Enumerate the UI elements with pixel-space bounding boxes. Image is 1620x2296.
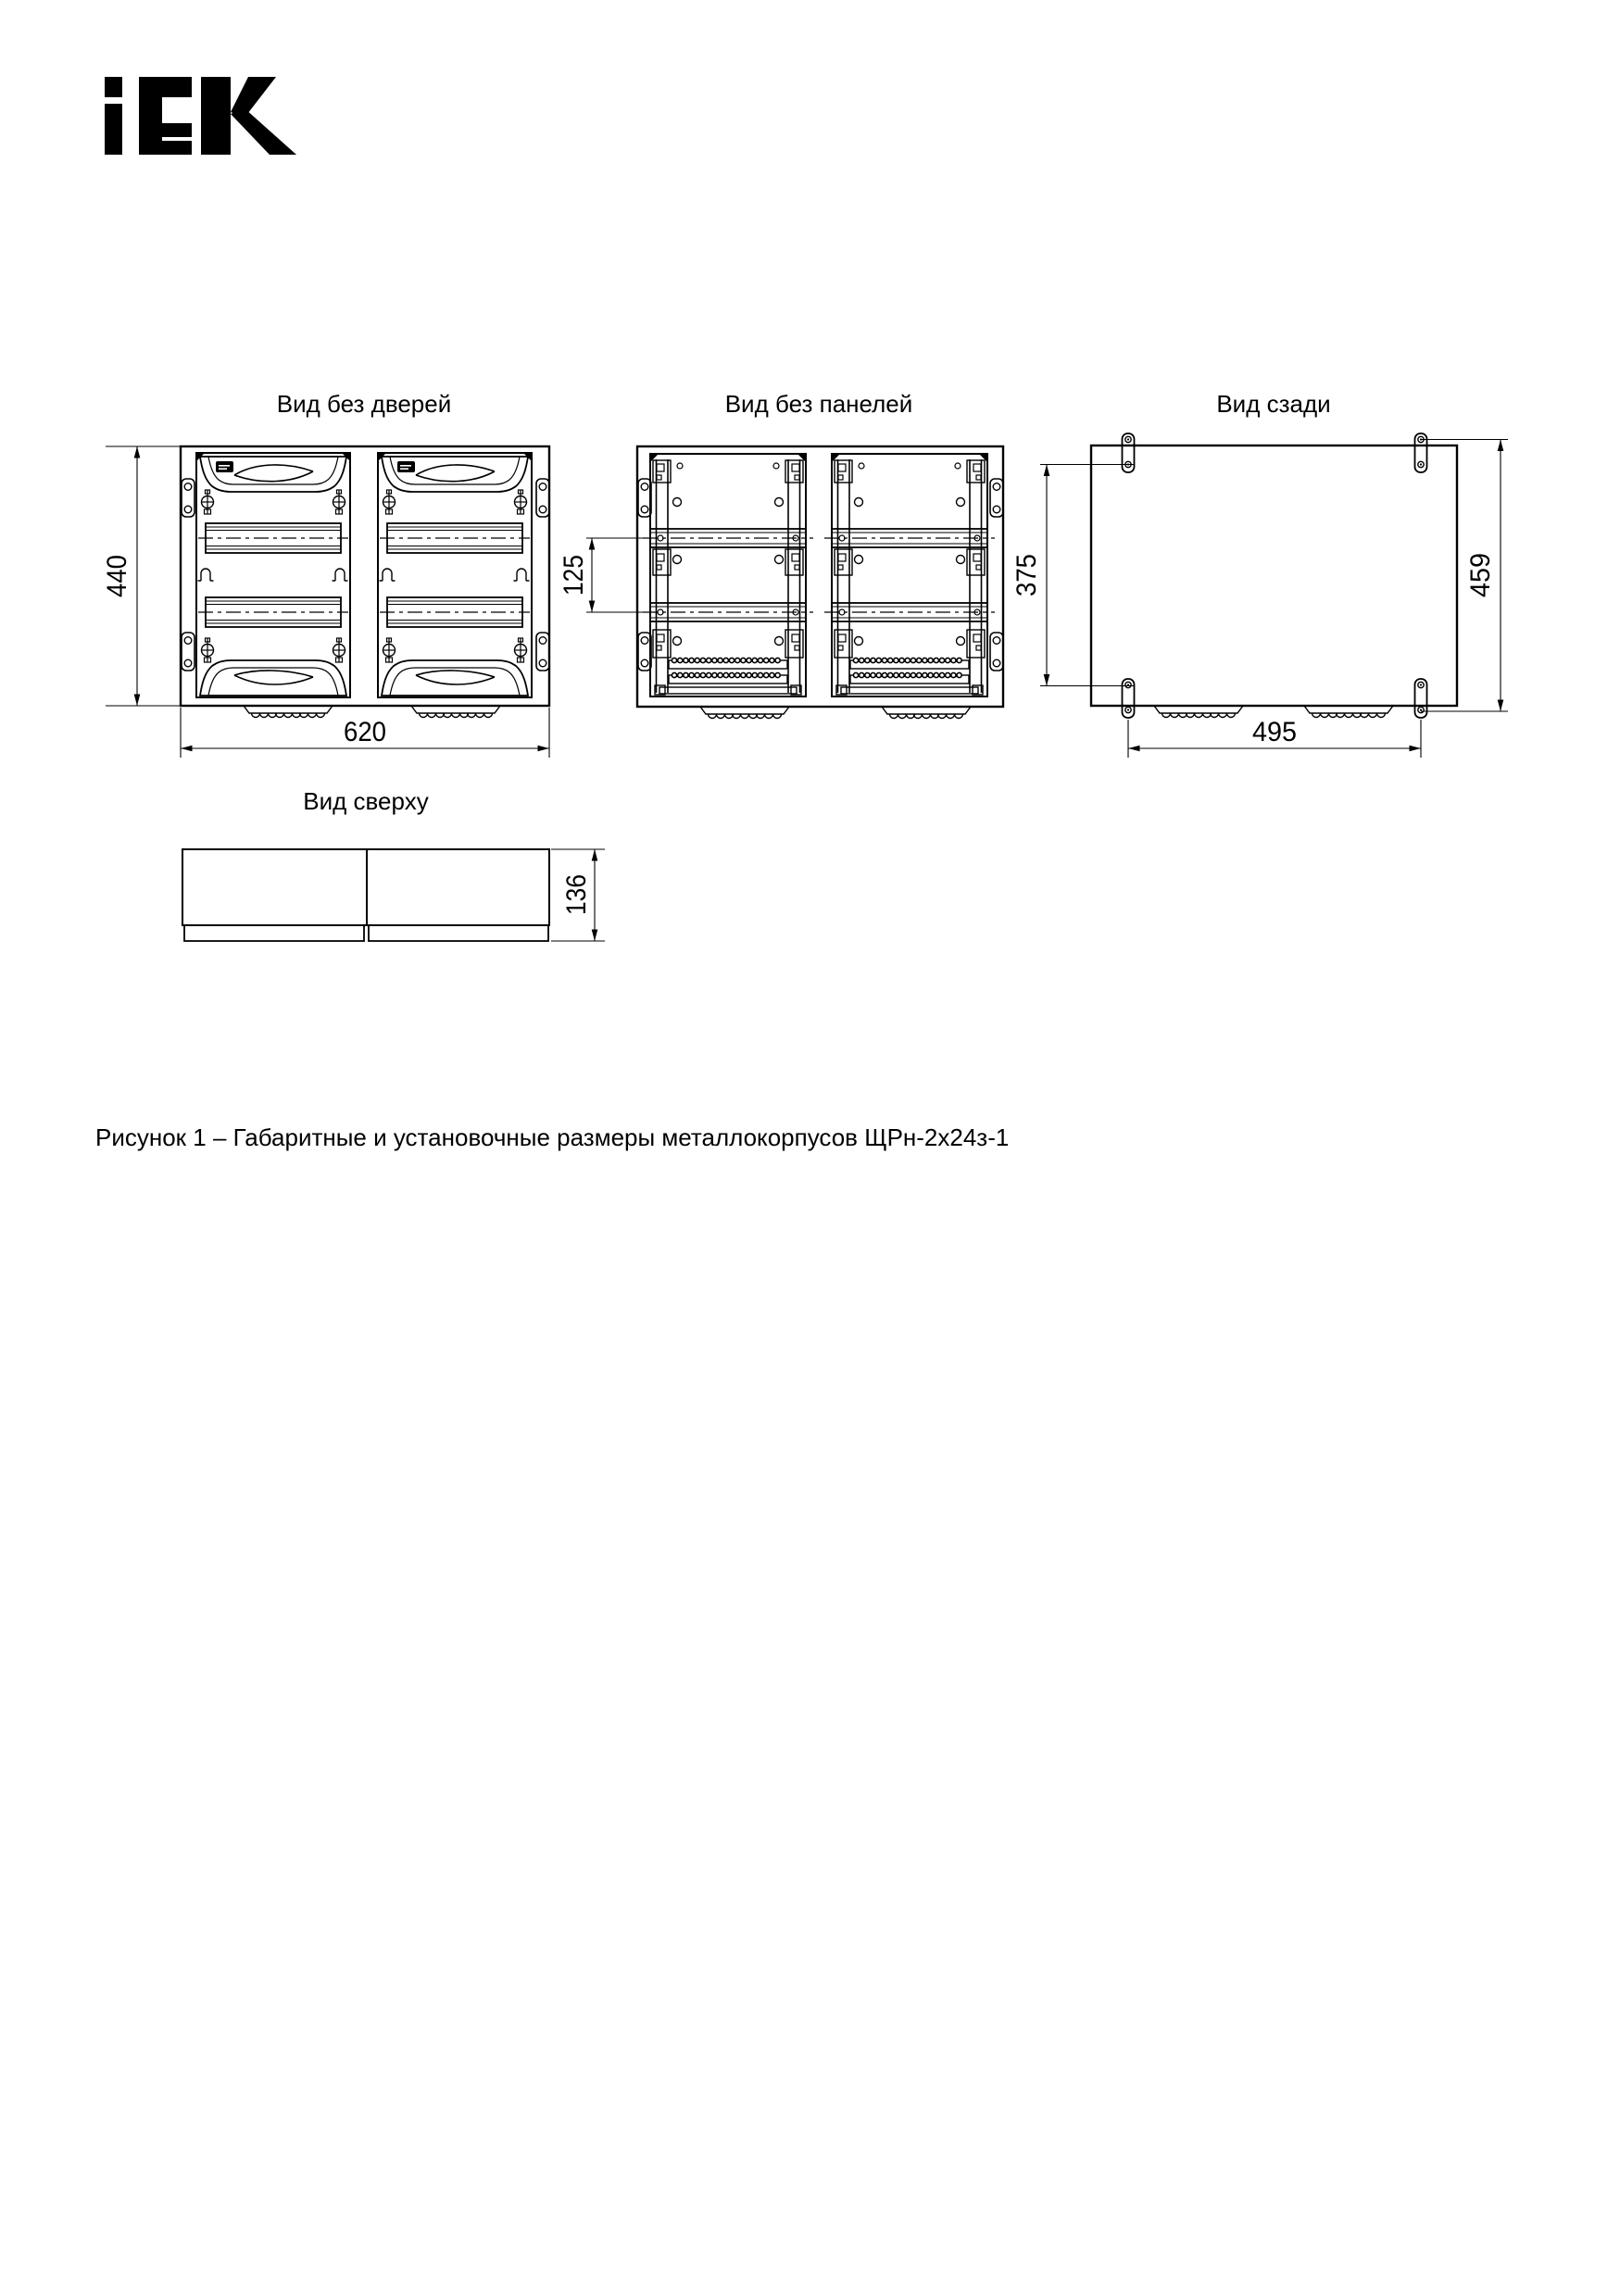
dimension-125: 125 xyxy=(559,538,645,612)
view-rear-title: Вид сзади xyxy=(1216,390,1330,418)
view-without-panels-title: Вид без панелей xyxy=(725,390,913,418)
view-without-panels: Вид без панелей 125 xyxy=(559,390,1003,719)
dimension-620-label: 620 xyxy=(344,717,386,747)
view-top-title: Вид сверху xyxy=(303,787,428,815)
door-section-right xyxy=(378,453,532,697)
cable-knockouts xyxy=(1304,706,1393,718)
cable-knockouts xyxy=(244,706,333,718)
enclosure-outline xyxy=(181,446,549,706)
dimension-459-label: 459 xyxy=(1465,553,1496,597)
drawing-page: Вид без дверей 440 620 Вид без панелей xyxy=(0,0,1620,2296)
cable-knockouts xyxy=(700,707,789,719)
enclosure-outline xyxy=(637,446,1003,707)
dimension-125-label: 125 xyxy=(559,555,589,596)
iek-logo xyxy=(105,77,296,155)
panel-section-left xyxy=(643,454,813,696)
dimension-375-label: 375 xyxy=(1011,554,1042,596)
dimension-136-label: 136 xyxy=(561,874,592,915)
dimension-440: 440 xyxy=(102,446,182,706)
dimension-136: 136 xyxy=(551,849,605,941)
technical-drawing-canvas: Вид без дверей 440 620 Вид без панелей xyxy=(0,0,1620,2296)
cable-knockouts xyxy=(1154,706,1243,718)
view-without-doors-title: Вид без дверей xyxy=(277,390,452,418)
dimension-620: 620 xyxy=(181,708,549,758)
mount-bracket-bottom-right xyxy=(1415,679,1427,718)
dimension-495: 495 xyxy=(1128,717,1421,758)
dimension-440-label: 440 xyxy=(102,555,132,597)
view-rear: Вид сзади 375 459 495 xyxy=(1011,390,1508,758)
figure-caption: Рисунок 1 – Габаритные и установочные ра… xyxy=(95,1123,1009,1151)
cable-knockouts xyxy=(882,707,971,719)
panel-section-right xyxy=(824,454,995,696)
view-top: Вид сверху 136 xyxy=(182,787,605,941)
rear-outline xyxy=(1091,445,1457,706)
dimension-375: 375 xyxy=(1011,465,1134,686)
dimension-459: 459 xyxy=(1421,440,1508,712)
door-section-left xyxy=(196,453,350,697)
cable-knockouts xyxy=(411,706,500,718)
dimension-495-label: 495 xyxy=(1252,717,1297,747)
mount-bracket-top-left xyxy=(1123,433,1135,472)
mount-bracket-bottom-left xyxy=(1123,679,1135,718)
view-without-doors: Вид без дверей 440 620 xyxy=(102,390,549,758)
